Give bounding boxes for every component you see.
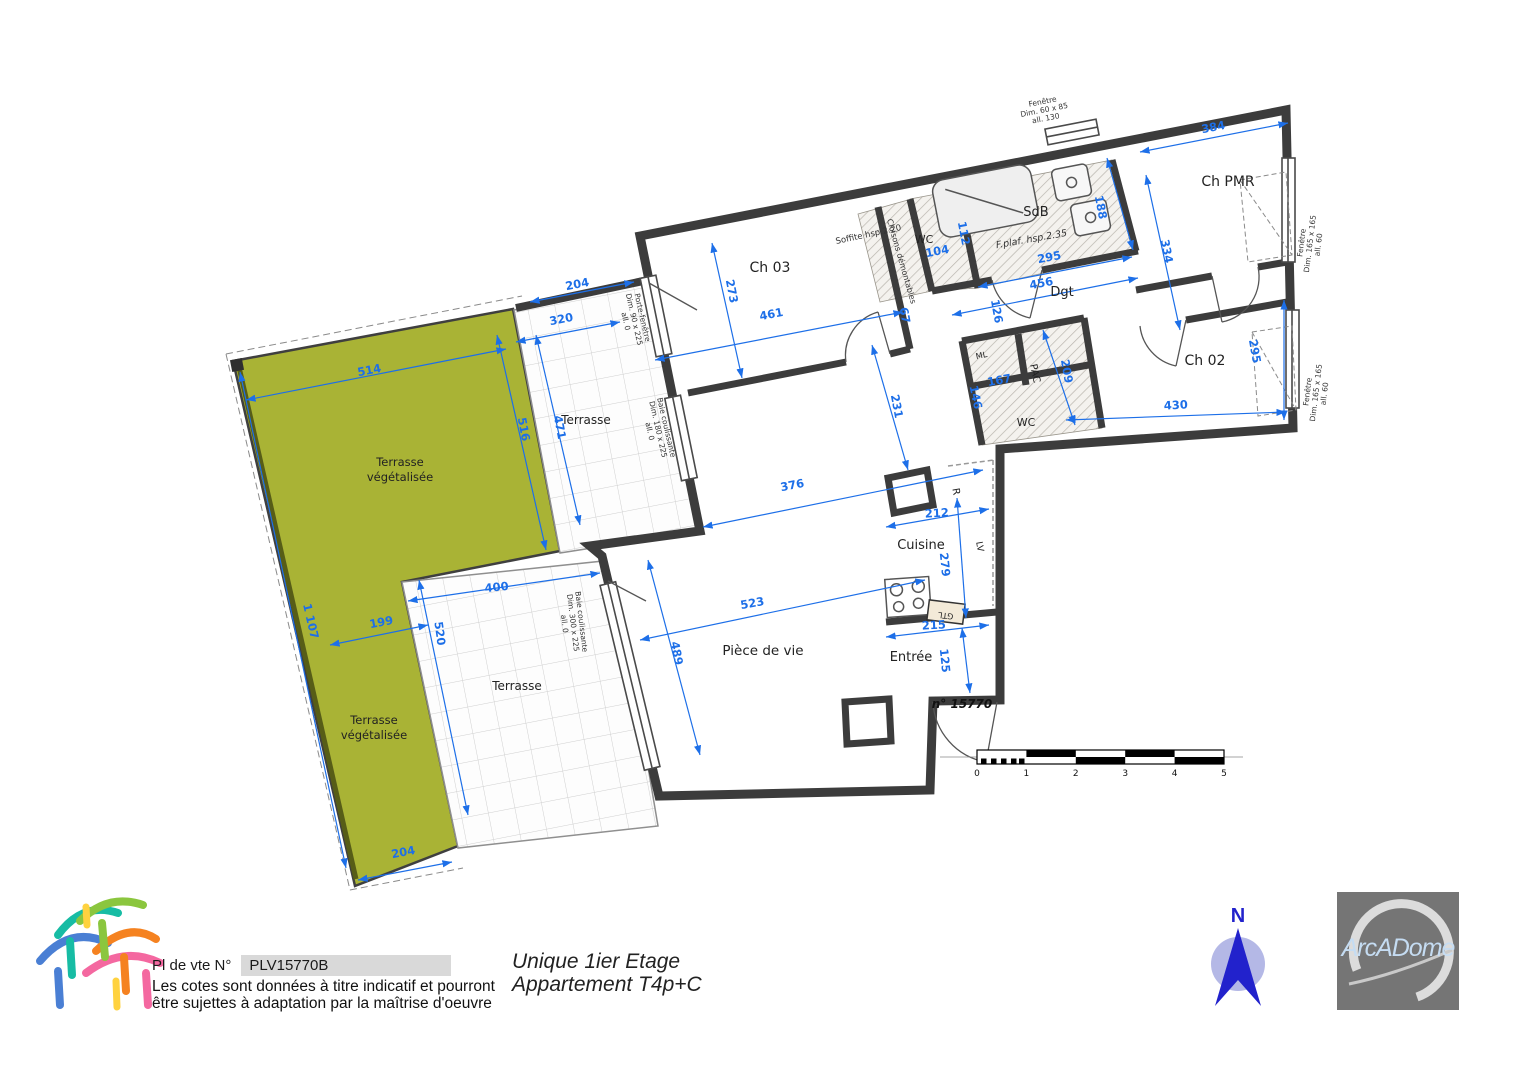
room-label: végétalisée bbox=[341, 728, 407, 742]
disclaimer: Les cotes sont données à titre indicatif… bbox=[152, 978, 495, 1012]
room-label: Pièce de vie bbox=[722, 643, 803, 659]
dimension-label: 212 bbox=[924, 505, 949, 520]
room-label: WC bbox=[1017, 416, 1036, 429]
plan-ref-value: PLV15770B bbox=[241, 955, 451, 976]
floor-plan-drawing: Ch 03Ch PMRCh 02SdBDgtWCWCPACMLCuisinePi… bbox=[0, 0, 1528, 1080]
plan-reference-row: Pl de vte N°PLV15770B bbox=[152, 955, 451, 976]
floor-plan-page: Ch 03Ch PMRCh 02SdBDgtWCWCPACMLCuisinePi… bbox=[0, 0, 1528, 1080]
stove-icon bbox=[885, 577, 932, 618]
window-spec: FenêtreDim. 60 x 85all. 130 bbox=[1018, 92, 1071, 127]
room-label: Ch PMR bbox=[1201, 174, 1255, 190]
room-label: Ch 03 bbox=[750, 260, 791, 276]
scale-number: 1 bbox=[1024, 769, 1030, 779]
window-ch02-165x165 bbox=[1286, 310, 1299, 408]
dimension-label: 279 bbox=[937, 552, 953, 577]
arcadome-logo: ArcADome bbox=[1337, 892, 1459, 1010]
scale-number: 2 bbox=[1073, 769, 1079, 779]
north-label: N bbox=[1231, 905, 1245, 927]
apartment-title: Appartement T4p+C bbox=[512, 973, 702, 996]
room-label: WC bbox=[915, 233, 934, 246]
brand-text: ArcADome bbox=[1341, 934, 1455, 963]
window-spec: FenêtreDim. 165 x 165all. 60 bbox=[1294, 213, 1327, 274]
unit-number: n° 15770 bbox=[932, 697, 992, 711]
room-label: SdB bbox=[1023, 205, 1048, 220]
dimension-label: 400 bbox=[484, 579, 509, 595]
dimension-label: 125 bbox=[937, 648, 953, 673]
dimension-label: 215 bbox=[921, 617, 946, 632]
room-label: végétalisée bbox=[367, 470, 433, 484]
scale-numbers-layer: 012345 bbox=[974, 769, 1227, 779]
window-60x85 bbox=[1045, 119, 1099, 145]
room-label: Terrasse bbox=[349, 713, 398, 727]
scale-number: 5 bbox=[1221, 769, 1227, 779]
floor-title: Unique 1ier Etage bbox=[512, 950, 702, 973]
scale-number: 4 bbox=[1172, 769, 1178, 779]
floor-title-block: Unique 1ier Etage Appartement T4p+C bbox=[512, 950, 702, 996]
dimension-label: 67 bbox=[897, 306, 914, 324]
window-spec: FenêtreDim. 165 x 165all. 60 bbox=[1300, 362, 1333, 423]
room-label: Entrée bbox=[890, 650, 933, 665]
plan-ref-label: Pl de vte N° bbox=[152, 957, 231, 974]
scale-number: 3 bbox=[1122, 769, 1128, 779]
dimension-label: 430 bbox=[1163, 397, 1188, 412]
room-label: Terrasse bbox=[491, 679, 542, 693]
disclaimer-line1: Les cotes sont données à titre indicatif… bbox=[152, 978, 495, 995]
room-label: Ch 02 bbox=[1185, 353, 1226, 369]
room-label: Terrasse bbox=[560, 413, 611, 427]
scale-number: 0 bbox=[974, 769, 980, 779]
scale-bar bbox=[940, 750, 1243, 764]
room-label: Cuisine bbox=[897, 538, 945, 553]
room-label: Terrasse bbox=[375, 455, 424, 469]
north-arrow: N bbox=[1200, 898, 1280, 1018]
disclaimer-line2: être sujettes à adaptation par la maîtri… bbox=[152, 995, 495, 1012]
